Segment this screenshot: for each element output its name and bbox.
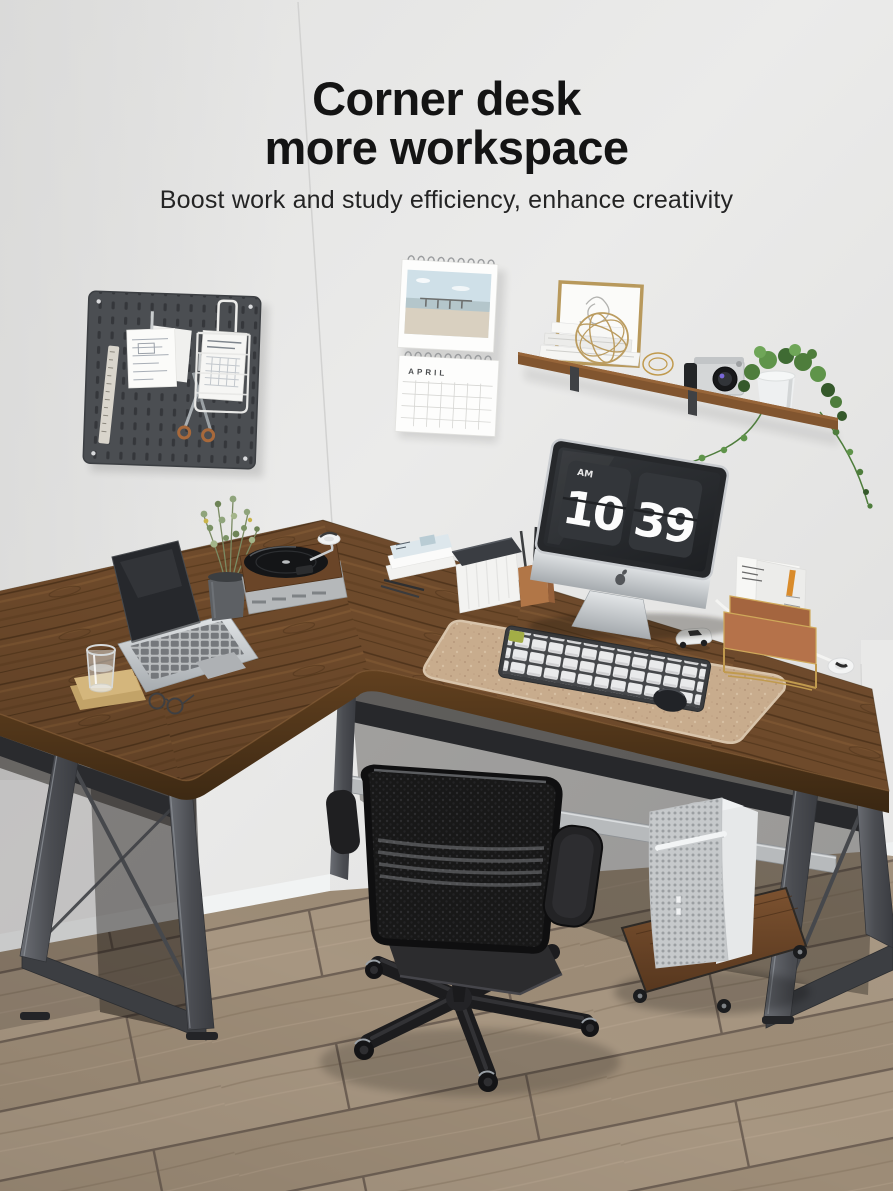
pegboard xyxy=(83,291,269,477)
shelf-bracket-right xyxy=(688,390,697,416)
wall-calendar: APRIL xyxy=(393,255,506,442)
water-glass xyxy=(87,645,115,692)
desk-grommet-left xyxy=(318,533,340,545)
clock-hour: 10 xyxy=(559,480,627,543)
room-scene: APRIL xyxy=(0,0,893,1191)
product-hero-image: APRIL xyxy=(0,0,893,1191)
white-storage-box xyxy=(452,538,522,613)
shelf-bracket-left xyxy=(570,366,579,392)
pc-mesh-front xyxy=(649,798,728,968)
desk-grommet-right xyxy=(828,658,854,674)
calendar-photo xyxy=(404,270,491,338)
clock-minute: 39 xyxy=(630,491,698,554)
